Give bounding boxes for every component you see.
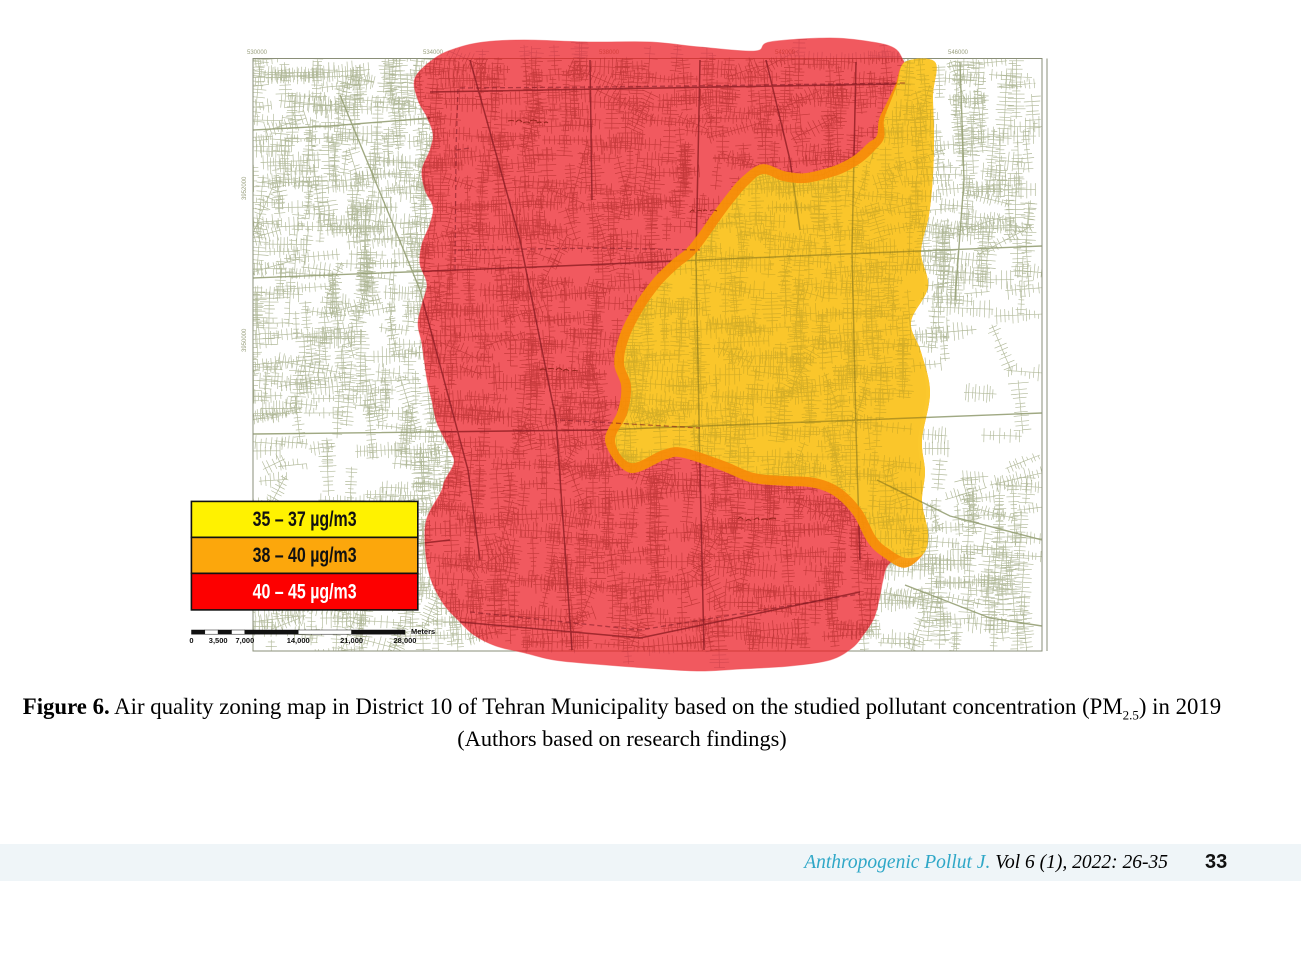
svg-text:0: 0	[189, 636, 193, 645]
svg-text:7,000: 7,000	[236, 636, 255, 645]
svg-text:546000: 546000	[948, 50, 969, 56]
svg-text:3950000: 3950000	[242, 328, 248, 352]
svg-text:40 – 45 µg/m3: 40 – 45 µg/m3	[253, 581, 357, 604]
svg-text:35 – 37 µg/m3: 35 – 37 µg/m3	[253, 508, 357, 531]
svg-text:3952000: 3952000	[242, 176, 248, 200]
svg-text:21,000: 21,000	[340, 636, 363, 645]
svg-text:14,000: 14,000	[287, 636, 310, 645]
svg-text:28,000: 28,000	[394, 636, 417, 645]
svg-text:Meters: Meters	[411, 627, 435, 636]
svg-text:38 – 40 µg/m3: 38 – 40 µg/m3	[253, 544, 357, 567]
svg-text:530000: 530000	[247, 50, 268, 56]
svg-text:3,500: 3,500	[209, 636, 228, 645]
